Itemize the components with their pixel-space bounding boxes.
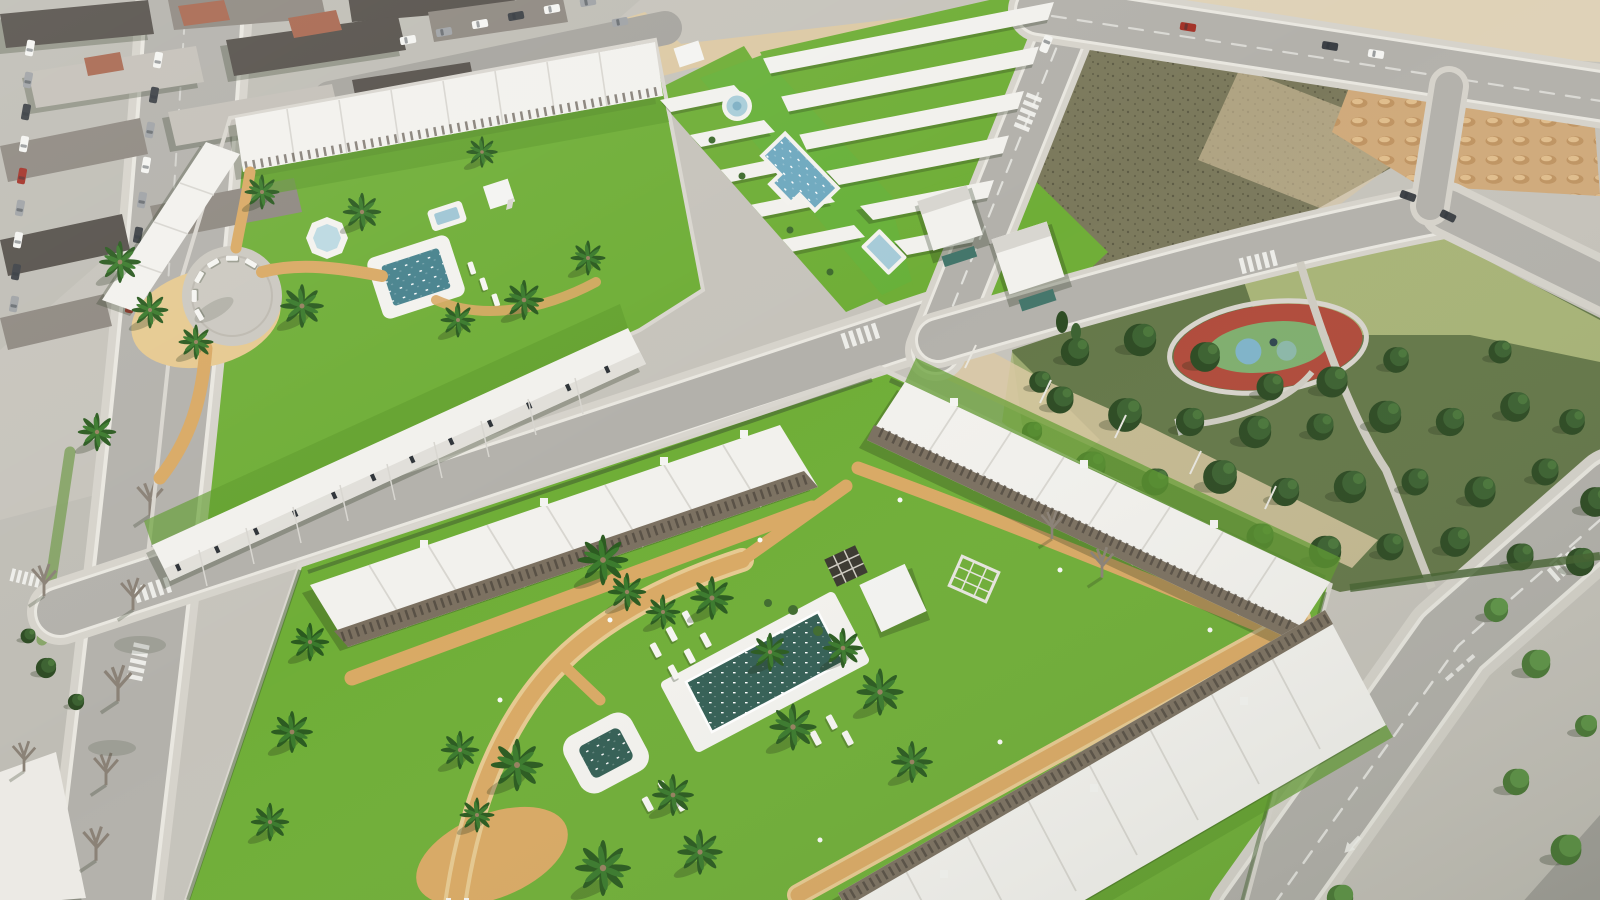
aerial-development-render [0,0,1600,900]
lighting-overlay [0,0,1600,900]
render-canvas [0,0,1600,900]
